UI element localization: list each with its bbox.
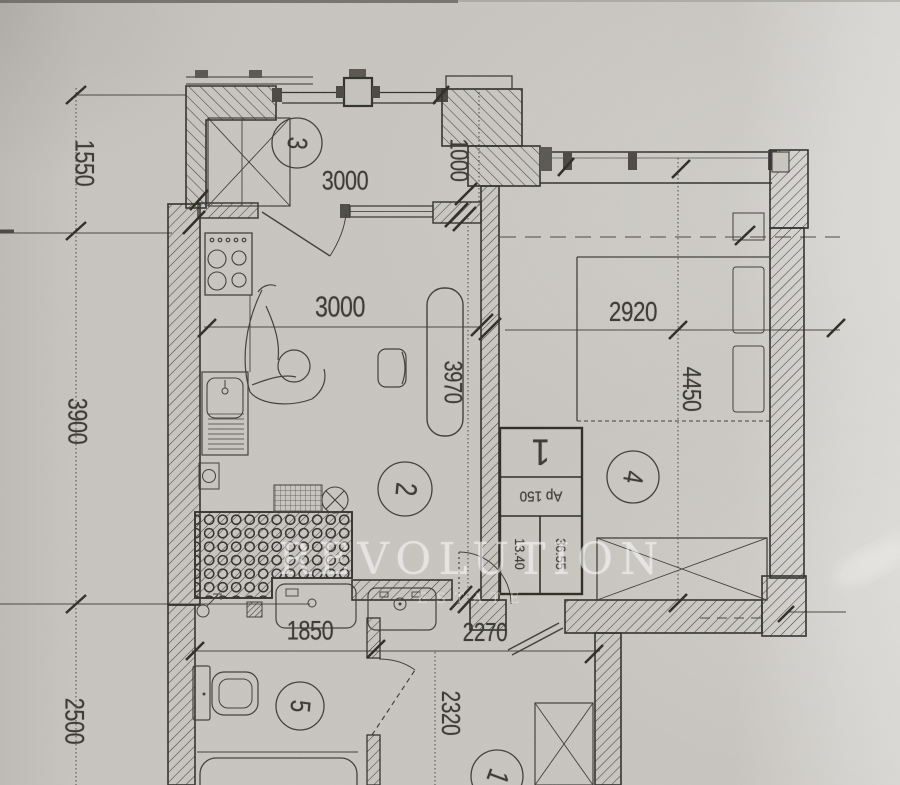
pillow-2 bbox=[733, 346, 764, 412]
paper-glare bbox=[828, 529, 900, 595]
wardrobe-neighbor bbox=[535, 703, 593, 785]
dim-kitchen-depth: 3970 bbox=[440, 361, 465, 404]
bed bbox=[577, 257, 770, 421]
wall-bottom-right-corner bbox=[762, 576, 806, 636]
balcony-crossed-box bbox=[208, 118, 290, 206]
stamp-flat-label: Ap 150 bbox=[520, 489, 563, 504]
nightstand bbox=[733, 213, 764, 240]
wall-balcony-divider bbox=[198, 202, 481, 223]
wall-balcony-right-1 bbox=[442, 89, 522, 146]
stove bbox=[205, 233, 252, 295]
dim-kitchen-width: 3000 bbox=[315, 294, 365, 323]
wall-right bbox=[770, 228, 804, 578]
balcony-glazing bbox=[272, 78, 448, 106]
hatch-square bbox=[247, 602, 262, 617]
wall-bottom-b bbox=[565, 600, 762, 633]
pillow-1 bbox=[733, 267, 764, 333]
wall-bottom-vertical bbox=[595, 633, 621, 785]
dim-left-bottom: 2500 bbox=[61, 698, 88, 744]
room-number-balcony: 3 bbox=[283, 136, 312, 150]
scan-top-edge bbox=[0, 0, 458, 3]
watermark-title: REVOLUTION bbox=[278, 534, 666, 585]
floor-plan-scan: 1550 3900 2500 3000 1000 3000 3970 2920 … bbox=[0, 0, 900, 785]
toilet bbox=[193, 666, 258, 720]
room-number-bathroom: 5 bbox=[286, 699, 315, 713]
wall-left-bath bbox=[168, 605, 195, 785]
dim-left-top: 1550 bbox=[71, 140, 98, 186]
stamp-flat-number: 1 bbox=[532, 434, 550, 471]
dim-balcony-depth: 1000 bbox=[446, 139, 471, 182]
bathroom-door bbox=[372, 659, 415, 735]
doors bbox=[262, 212, 563, 735]
person-sketch bbox=[245, 285, 325, 404]
walls bbox=[168, 69, 808, 785]
watermark-subtitle: ESTATE bbox=[417, 591, 528, 607]
dim-balcony-width: 3000 bbox=[322, 168, 368, 195]
dim-hallway-width: 2270 bbox=[463, 619, 508, 645]
dimension-lines bbox=[0, 88, 846, 785]
dim-hallway-depth: 2320 bbox=[438, 691, 464, 736]
room-number-kitchen: 2 bbox=[389, 481, 420, 497]
sink-unit bbox=[202, 372, 248, 455]
floor-drain bbox=[199, 463, 219, 489]
wall-balcony-right-2 bbox=[468, 146, 540, 186]
entrance-door bbox=[508, 623, 563, 655]
bedroom-window-band bbox=[540, 147, 777, 183]
wall-notch-tr bbox=[772, 152, 789, 172]
tile-patch bbox=[274, 485, 322, 512]
dim-left-middle: 3900 bbox=[64, 398, 91, 444]
dim-bedroom-width: 2920 bbox=[609, 298, 657, 326]
scan-top-edge-right bbox=[458, 0, 900, 2]
fan-symbol bbox=[322, 487, 348, 513]
kitchen-chair bbox=[378, 349, 406, 387]
wall-notch bbox=[446, 76, 512, 89]
balcony-parapet bbox=[186, 69, 366, 84]
bathtub bbox=[197, 752, 358, 785]
dim-bedroom-depth: 4450 bbox=[679, 367, 705, 412]
dim-bathroom-width: 1850 bbox=[287, 618, 333, 645]
balcony-door bbox=[262, 212, 346, 256]
wall-bath-post-bottom bbox=[367, 735, 380, 785]
